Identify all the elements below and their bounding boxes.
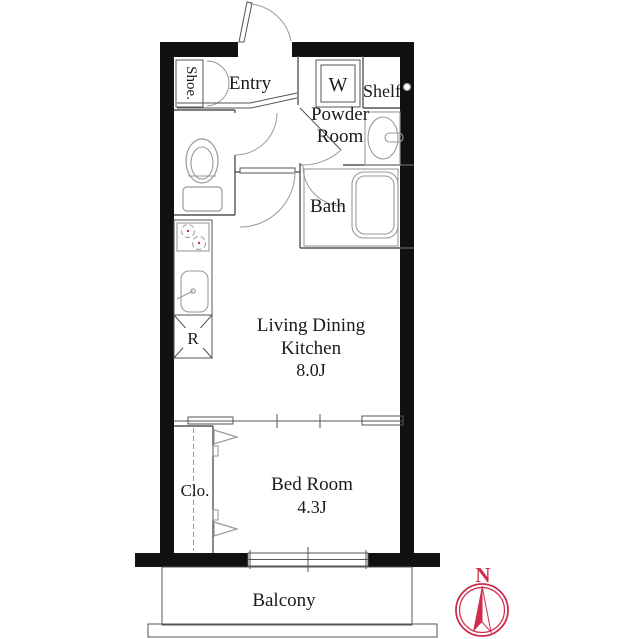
- entry-door-swing-arc: [250, 4, 291, 41]
- vanity-counter: [365, 112, 400, 165]
- wall-right: [400, 42, 414, 567]
- room-label-closet: Clo.: [181, 481, 210, 500]
- bathtub: [352, 172, 398, 238]
- toilet: [183, 139, 222, 211]
- powder-door-arc: [300, 150, 341, 165]
- room-label-ldk-line1: Living Dining: [257, 315, 366, 336]
- burner-dot: [187, 230, 189, 232]
- entry-door: [239, 2, 291, 42]
- burner-dot: [198, 242, 200, 244]
- room-label-shoe: Shoe.: [183, 66, 199, 100]
- floorplan-page: N Shoe. Entry W Shelf Powder Room Bath L…: [0, 0, 640, 639]
- hall-door-arc: [240, 172, 295, 227]
- room-label-ldk-size: 8.0J: [296, 360, 326, 380]
- vent-icon: [404, 84, 411, 91]
- shoe-door-arc-top: [207, 61, 229, 83]
- room-label-bedroom-size: 4.3J: [297, 497, 327, 517]
- wall-top-right: [292, 42, 414, 57]
- room-label-fridge: R: [187, 329, 199, 348]
- wall-bottom-right: [368, 553, 440, 567]
- balcony-rail: [148, 624, 437, 637]
- room-label-balcony: Balcony: [252, 590, 316, 611]
- room-label-bath: Bath: [310, 196, 346, 217]
- room-label-powder-line1: Powder: [311, 104, 370, 125]
- toilet-door-arc: [235, 113, 277, 155]
- compass-needle-right: [482, 586, 491, 632]
- toilet-tank: [183, 187, 222, 211]
- room-label-shelf: Shelf: [363, 81, 401, 101]
- compass-north-label: N: [475, 563, 490, 587]
- kitchen-counter: [174, 220, 212, 315]
- closet-door-mark-bottom: [214, 522, 237, 536]
- room-label-bedroom: Bed Room: [271, 474, 353, 495]
- closet-handle-top: [213, 446, 218, 456]
- entry-door-leaf: [239, 2, 252, 42]
- room-label-washer: W: [329, 74, 348, 96]
- floorplan-canvas: N Shoe. Entry W Shelf Powder Room Bath L…: [0, 0, 640, 639]
- room-label-entry: Entry: [229, 73, 272, 94]
- closet-handle-bottom: [213, 510, 218, 520]
- compass-needle-left: [473, 586, 482, 632]
- bedroom-window: [248, 547, 368, 572]
- washbasin: [368, 117, 398, 159]
- room-label-ldk-line2: Kitchen: [281, 338, 342, 359]
- room-label-powder-line2: Room: [317, 126, 364, 147]
- closet-door-mark-top: [214, 430, 237, 444]
- wall-bottom-left: [135, 553, 248, 567]
- hall-door-leaf: [240, 168, 295, 173]
- kitchen-sink: [181, 271, 208, 312]
- compass: N: [456, 563, 508, 636]
- bathtub-inner: [356, 176, 394, 234]
- wall-left: [160, 42, 174, 567]
